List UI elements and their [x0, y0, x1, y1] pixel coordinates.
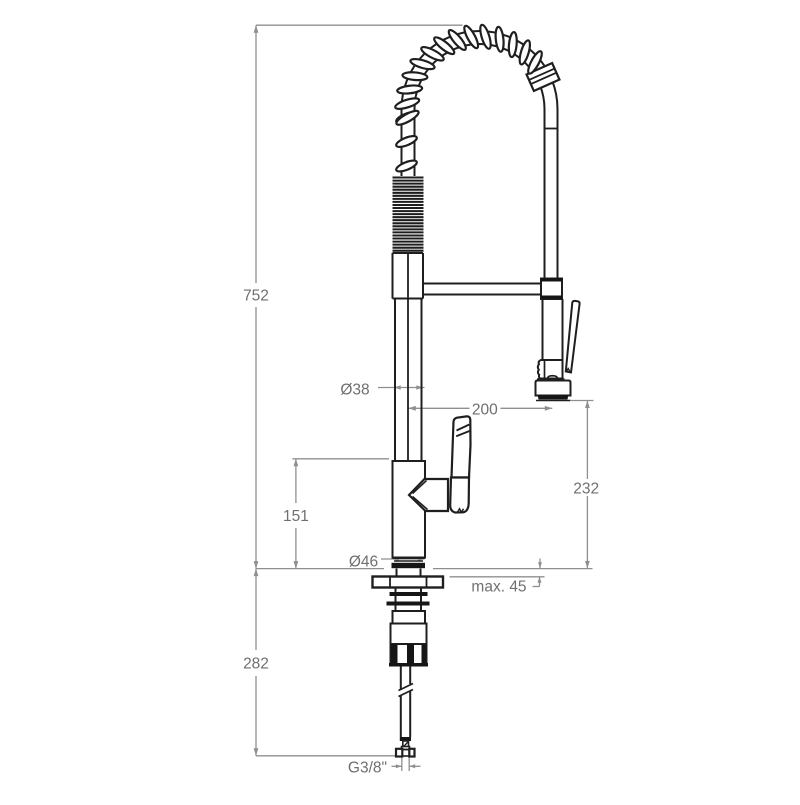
svg-text:Ø38: Ø38 [340, 382, 369, 399]
svg-text:752: 752 [243, 288, 269, 305]
svg-text:151: 151 [283, 508, 309, 525]
svg-text:max. 45: max. 45 [471, 579, 526, 596]
svg-text:200: 200 [472, 401, 498, 418]
svg-text:232: 232 [573, 480, 599, 497]
svg-text:282: 282 [243, 656, 269, 673]
svg-text:G3/8": G3/8" [348, 759, 387, 776]
svg-text:Ø46: Ø46 [349, 554, 378, 571]
